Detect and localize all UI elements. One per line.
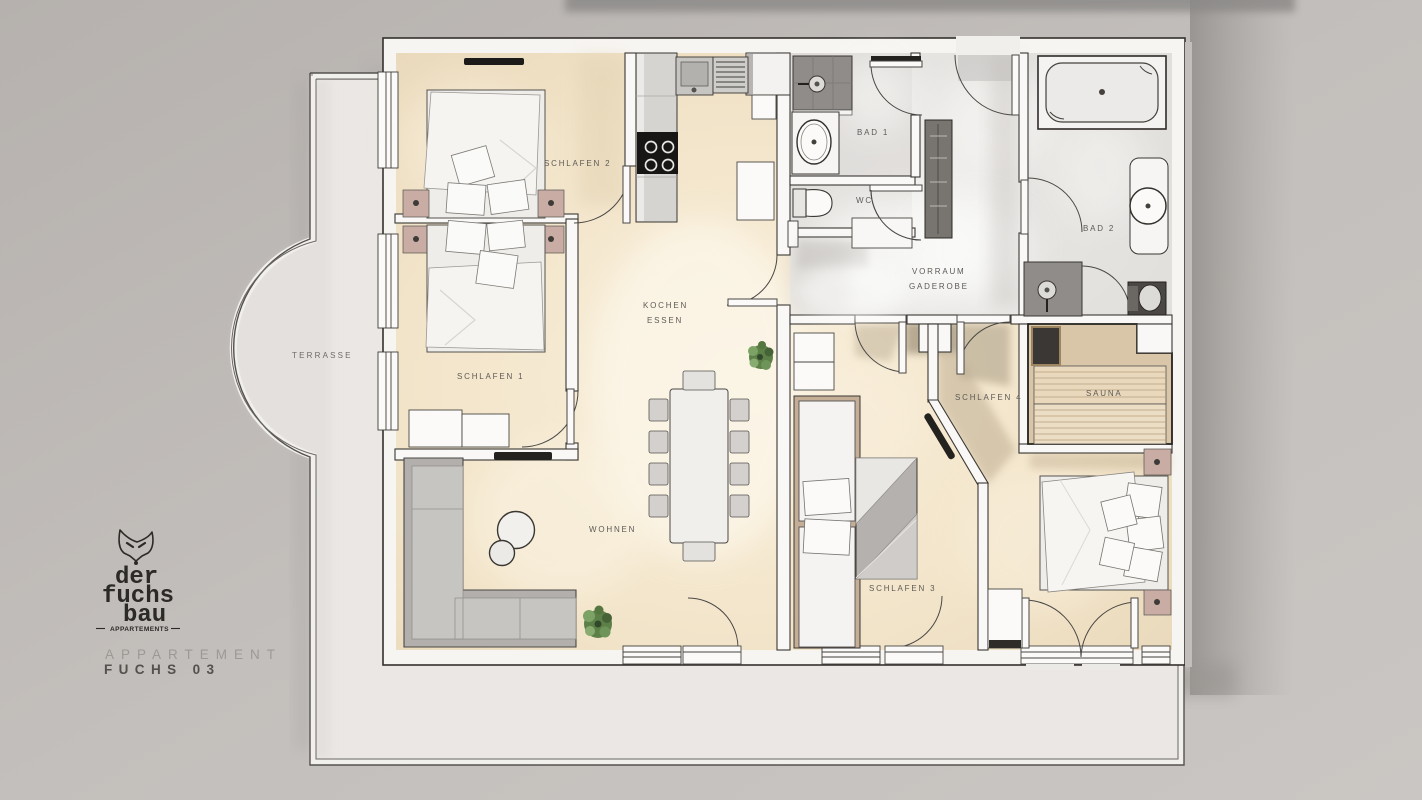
svg-text:BAD 2: BAD 2 [1083, 224, 1115, 233]
svg-text:GADEROBE: GADEROBE [909, 282, 969, 291]
svg-text:SCHLAFEN 1: SCHLAFEN 1 [457, 372, 524, 381]
svg-text:WC: WC [856, 196, 873, 205]
svg-text:FUCHS 03: FUCHS 03 [104, 662, 220, 677]
svg-text:bau: bau [123, 602, 166, 629]
svg-text:KOCHEN: KOCHEN [643, 301, 688, 310]
svg-text:SCHLAFEN 3: SCHLAFEN 3 [869, 584, 936, 593]
svg-text:SAUNA: SAUNA [1086, 389, 1123, 398]
svg-text:WOHNEN: WOHNEN [589, 525, 636, 534]
svg-text:SCHLAFEN 2: SCHLAFEN 2 [544, 159, 611, 168]
svg-text:APPARTEMENTS: APPARTEMENTS [110, 626, 169, 633]
svg-text:BAD 1: BAD 1 [857, 128, 889, 137]
svg-text:ESSEN: ESSEN [647, 316, 683, 325]
svg-text:APPARTEMENT: APPARTEMENT [105, 647, 282, 662]
svg-text:SCHLAFEN 4: SCHLAFEN 4 [955, 393, 1022, 402]
svg-text:VORRAUM: VORRAUM [912, 267, 966, 276]
svg-text:TERRASSE: TERRASSE [292, 351, 353, 360]
